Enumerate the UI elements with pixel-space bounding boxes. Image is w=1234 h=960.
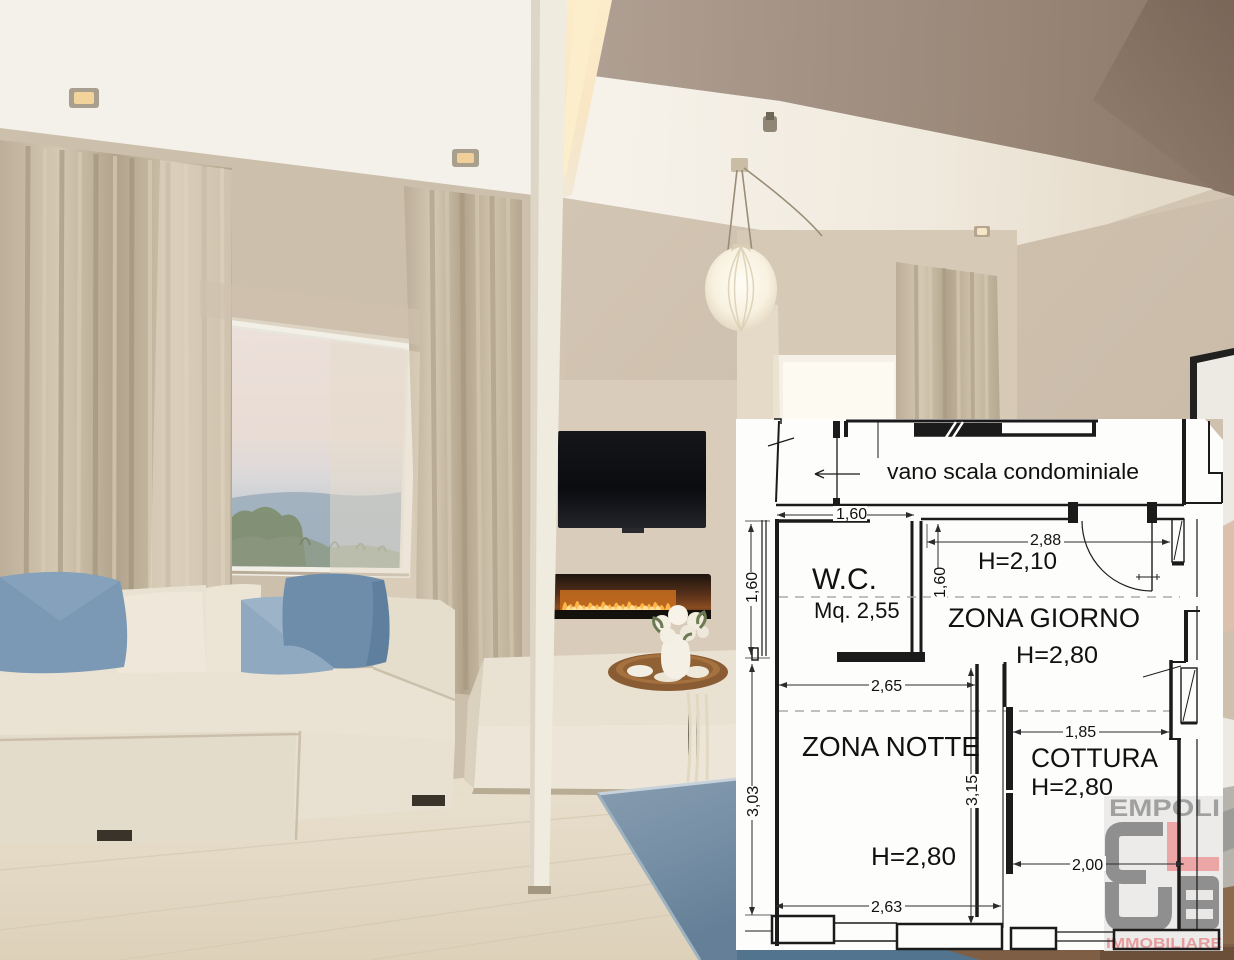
- svg-text:H=2,80: H=2,80: [1016, 642, 1098, 669]
- svg-text:1,60: 1,60: [836, 506, 867, 523]
- svg-text:W.C.: W.C.: [812, 563, 877, 596]
- svg-text:vano scala condominiale: vano scala condominiale: [887, 459, 1139, 484]
- svg-text:COTTURA: COTTURA: [1031, 743, 1158, 773]
- svg-text:1,60: 1,60: [932, 567, 949, 598]
- svg-text:Mq. 2,55: Mq. 2,55: [814, 598, 900, 623]
- svg-text:2,88: 2,88: [1030, 532, 1061, 549]
- svg-text:3,15: 3,15: [964, 775, 981, 806]
- svg-text:2,65: 2,65: [871, 678, 902, 695]
- svg-text:H=2,80: H=2,80: [871, 843, 956, 871]
- svg-text:3,03: 3,03: [745, 786, 762, 817]
- svg-text:ZONA GIORNO: ZONA GIORNO: [948, 603, 1140, 633]
- svg-text:1,85: 1,85: [1065, 724, 1096, 741]
- svg-text:2,63: 2,63: [871, 899, 902, 916]
- svg-text:H=2,10: H=2,10: [978, 548, 1057, 575]
- svg-text:EMPOLI: EMPOLI: [1109, 795, 1220, 822]
- svg-text:2,00: 2,00: [1072, 857, 1103, 874]
- svg-text:1,60: 1,60: [744, 572, 761, 603]
- svg-text:H=2,80: H=2,80: [1031, 774, 1113, 801]
- svg-text:ZONA NOTTE: ZONA NOTTE: [802, 731, 980, 762]
